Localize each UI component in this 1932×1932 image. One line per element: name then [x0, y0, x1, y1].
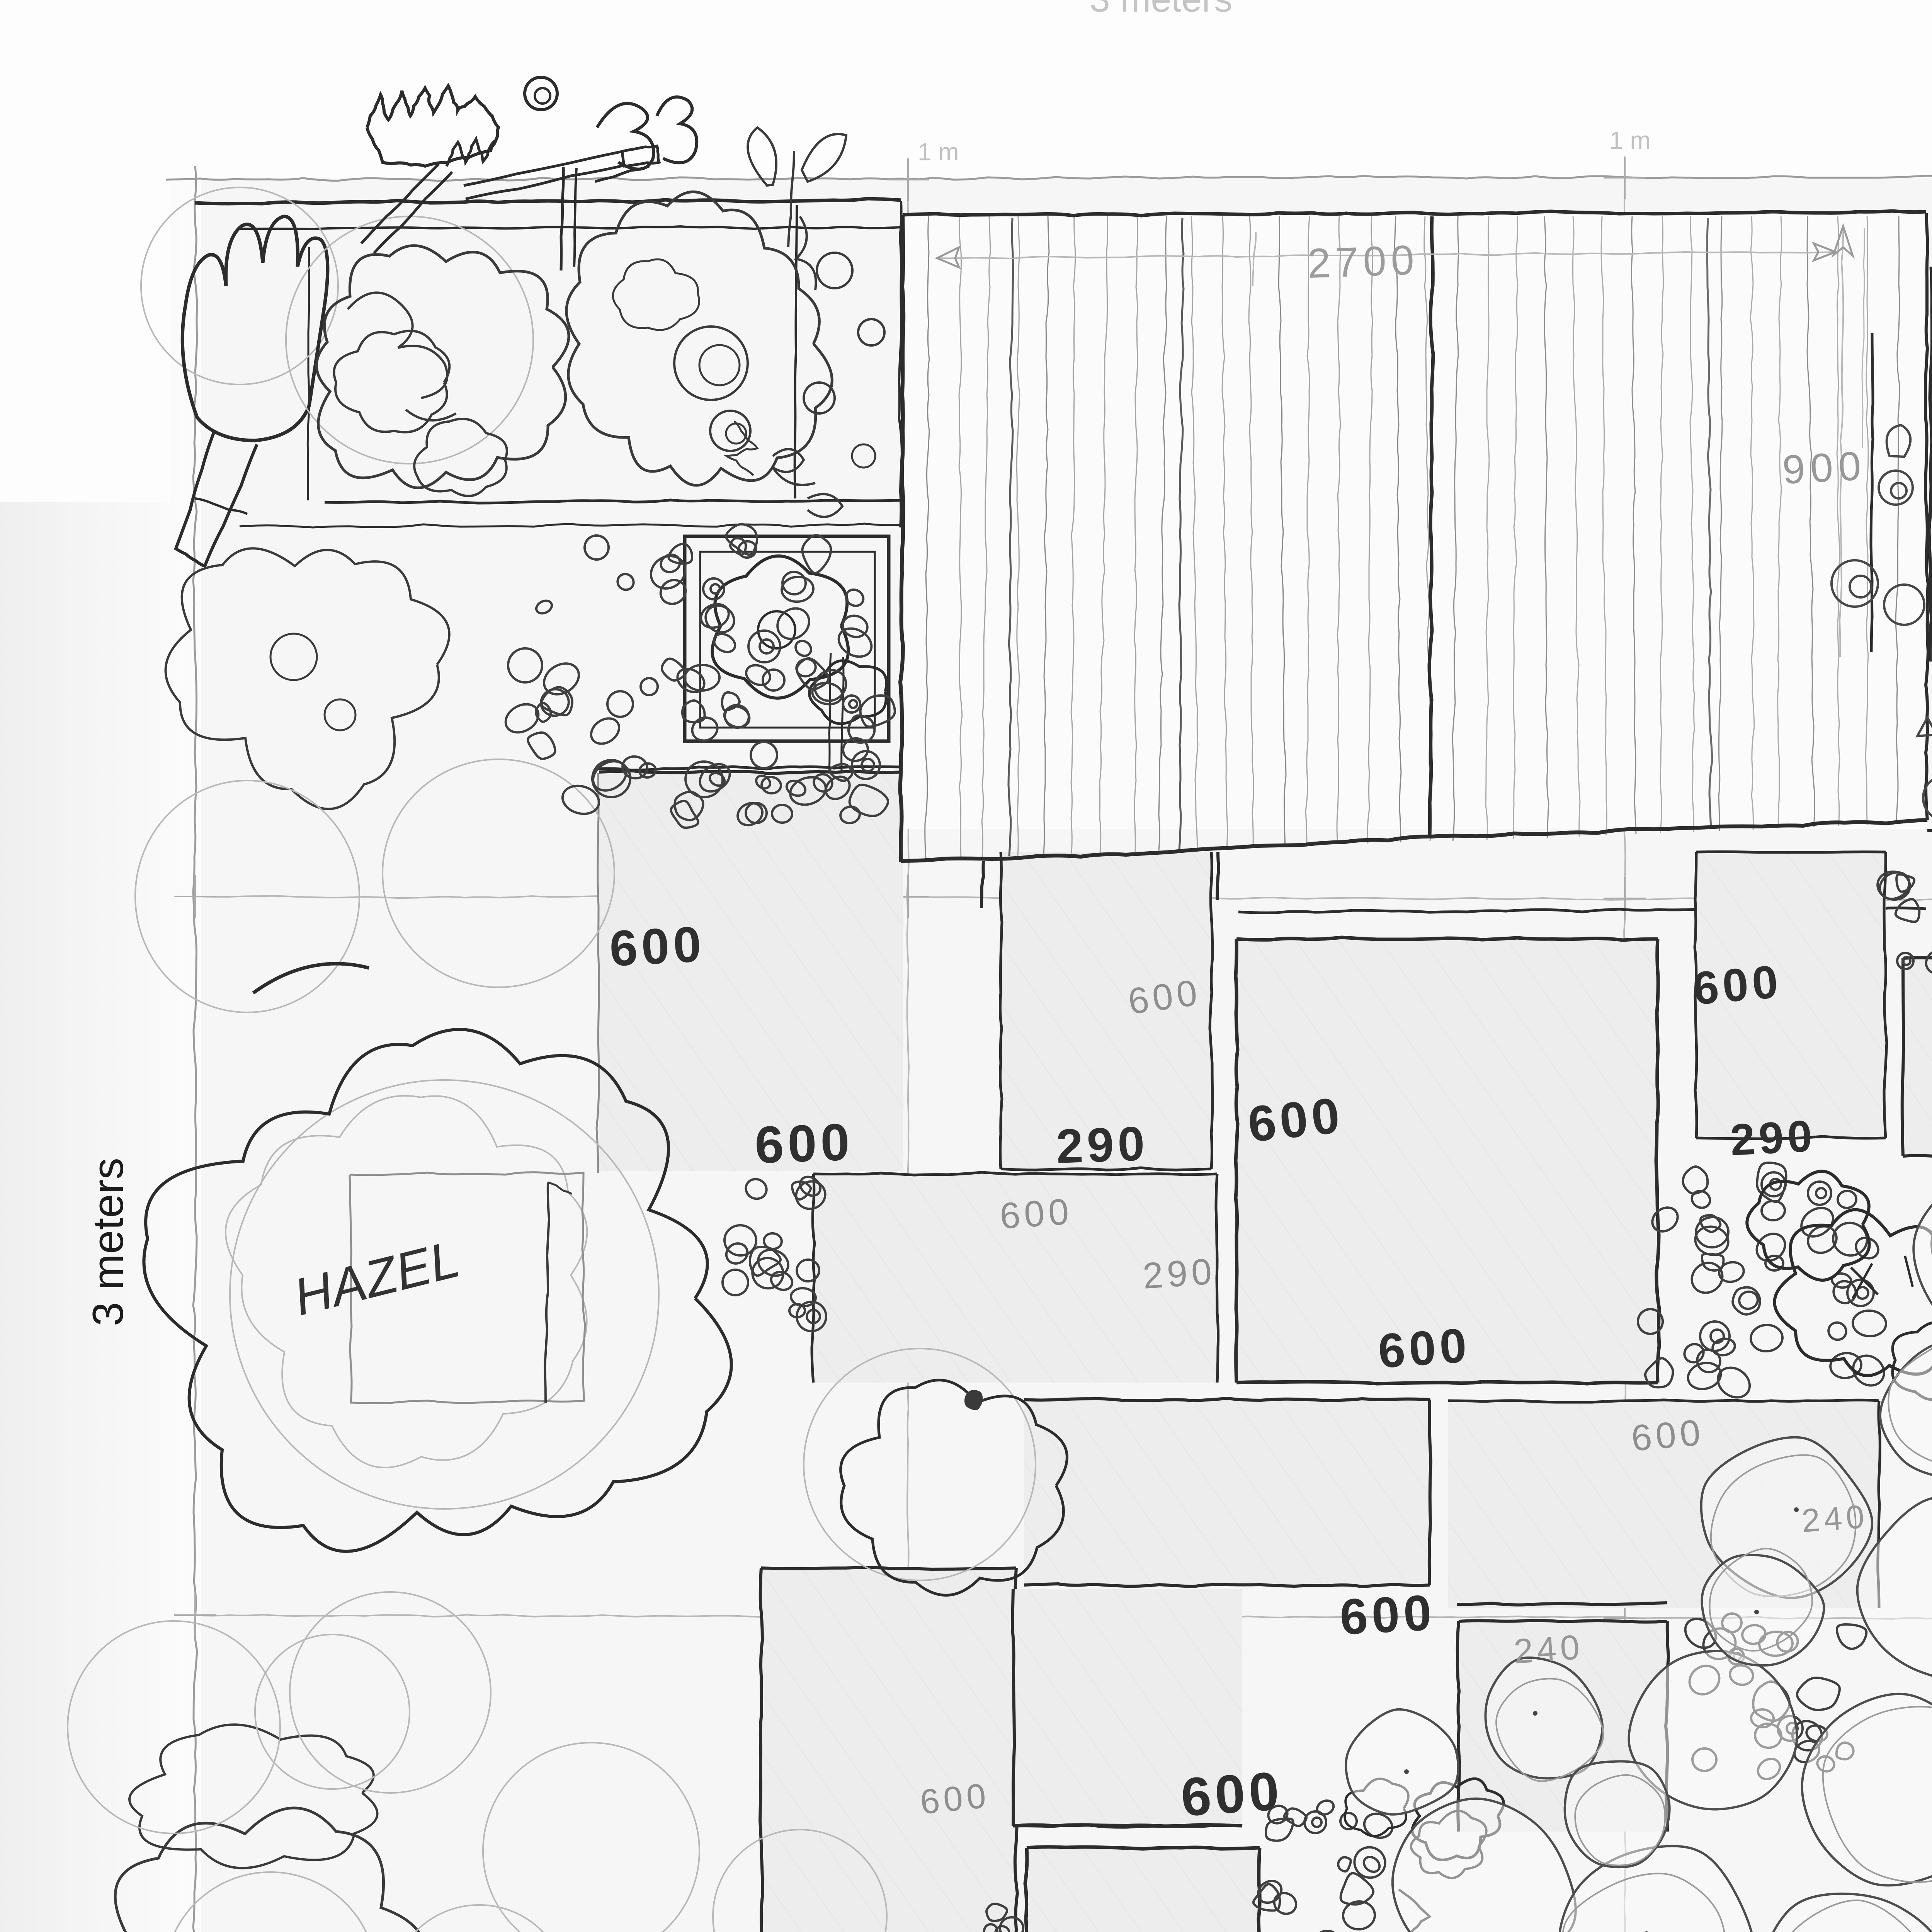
- svg-text:290: 290: [1055, 1117, 1149, 1173]
- svg-text:1 m: 1 m: [918, 138, 959, 166]
- svg-text:2700: 2700: [1306, 236, 1419, 287]
- svg-text:3 meters: 3 meters: [1090, 0, 1233, 20]
- svg-text:240: 240: [1512, 1628, 1585, 1671]
- svg-text:600: 600: [1245, 1087, 1346, 1153]
- svg-text:290: 290: [1141, 1251, 1217, 1297]
- svg-text:600: 600: [1630, 1412, 1706, 1459]
- svg-text:290: 290: [1729, 1111, 1817, 1165]
- svg-text:3 meters: 3 meters: [84, 1158, 132, 1326]
- svg-text:600: 600: [754, 1112, 854, 1174]
- svg-text:600: 600: [1691, 955, 1784, 1015]
- svg-text:600: 600: [998, 1191, 1074, 1237]
- svg-text:600: 600: [1338, 1584, 1437, 1645]
- svg-text:900: 900: [1781, 443, 1867, 493]
- svg-text:600: 600: [1376, 1318, 1472, 1378]
- svg-text:1 m: 1 m: [1609, 126, 1651, 154]
- svg-text:600: 600: [608, 915, 706, 977]
- svg-text:600: 600: [918, 1776, 992, 1822]
- svg-text:600: 600: [1179, 1760, 1285, 1828]
- svg-text:240: 240: [1801, 1498, 1869, 1539]
